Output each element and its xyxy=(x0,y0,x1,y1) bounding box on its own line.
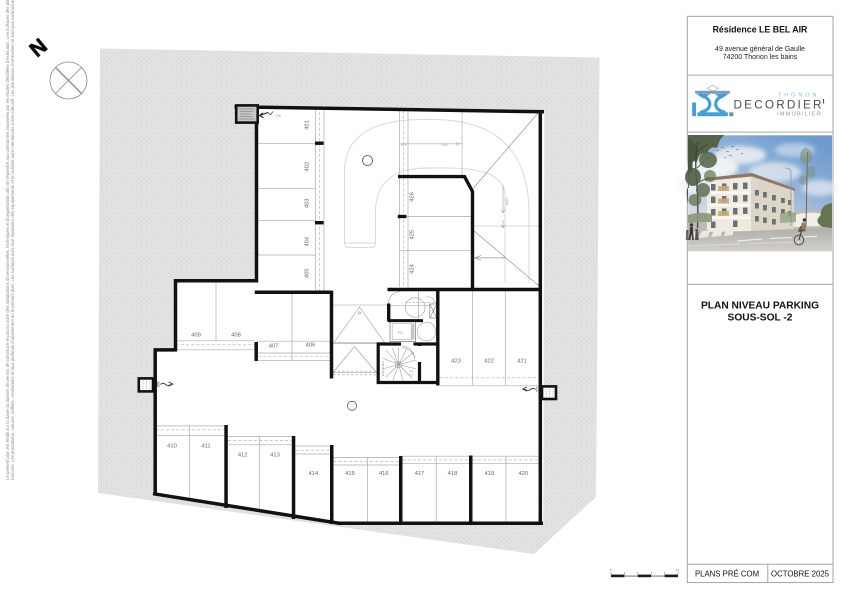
svg-text:S-1: S-1 xyxy=(409,373,414,377)
svg-text:OCTOBRE 2025: OCTOBRE 2025 xyxy=(771,569,830,578)
svg-text:415: 415 xyxy=(345,471,355,477)
svg-text:49 avenue général de Gaulle: 49 avenue général de Gaulle xyxy=(715,46,805,53)
svg-text:Résidence LE BEL AIR: Résidence LE BEL AIR xyxy=(713,25,808,35)
svg-text:20%: 20% xyxy=(441,143,448,147)
svg-text:409: 409 xyxy=(191,333,201,339)
svg-text:410: 410 xyxy=(167,443,177,449)
svg-text:2%: 2% xyxy=(276,114,281,118)
svg-text:408: 408 xyxy=(231,333,241,339)
svg-text:426: 426 xyxy=(410,192,416,202)
svg-text:417: 417 xyxy=(415,471,425,477)
svg-text:402: 402 xyxy=(305,162,311,172)
svg-text:421: 421 xyxy=(517,359,527,365)
svg-text:ESCALIER: ESCALIER xyxy=(381,360,385,376)
svg-text:20%: 20% xyxy=(505,198,509,206)
svg-text:420: 420 xyxy=(518,471,528,477)
svg-text:404: 404 xyxy=(305,236,311,246)
svg-text:407: 407 xyxy=(269,344,279,350)
svg-text:412: 412 xyxy=(238,453,248,459)
svg-text:425: 425 xyxy=(410,230,416,240)
svg-text:PLANS PRÉ COM: PLANS PRÉ COM xyxy=(695,569,759,578)
svg-text:414: 414 xyxy=(308,471,318,477)
svg-text:DECORDIER: DECORDIER xyxy=(734,98,822,112)
svg-text:403: 403 xyxy=(305,198,311,208)
svg-text:0: 0 xyxy=(610,568,612,572)
svg-text:401: 401 xyxy=(305,120,311,130)
svg-text:416: 416 xyxy=(379,471,389,477)
svg-text:424: 424 xyxy=(410,263,416,273)
svg-text:423: 423 xyxy=(451,359,461,365)
svg-text:S-2: S-2 xyxy=(409,369,414,373)
svg-text:PLAN NIVEAU PARKING: PLAN NIVEAU PARKING xyxy=(701,301,819,312)
svg-text:405: 405 xyxy=(305,268,311,278)
svg-text:N: N xyxy=(25,34,51,61)
svg-text:SOUS-SOL -2: SOUS-SOL -2 xyxy=(728,313,793,324)
svg-text:20%: 20% xyxy=(401,143,408,147)
svg-text:IMMOBILIER: IMMOBILIER xyxy=(777,112,822,118)
svg-text:ASC: ASC xyxy=(398,330,404,334)
svg-text:411: 411 xyxy=(201,443,210,449)
svg-text:418: 418 xyxy=(448,471,458,477)
svg-text:413: 413 xyxy=(270,453,280,459)
svg-text:419: 419 xyxy=(484,471,494,477)
svg-text:trouvent. Les prestations, nat: trouvent. Les prestations, natures, soff… xyxy=(10,0,15,480)
svg-text:74200 Thonon les bains: 74200 Thonon les bains xyxy=(723,54,798,61)
svg-text:10: 10 xyxy=(676,568,680,572)
svg-text:406: 406 xyxy=(306,342,316,348)
svg-text:422: 422 xyxy=(484,359,494,365)
